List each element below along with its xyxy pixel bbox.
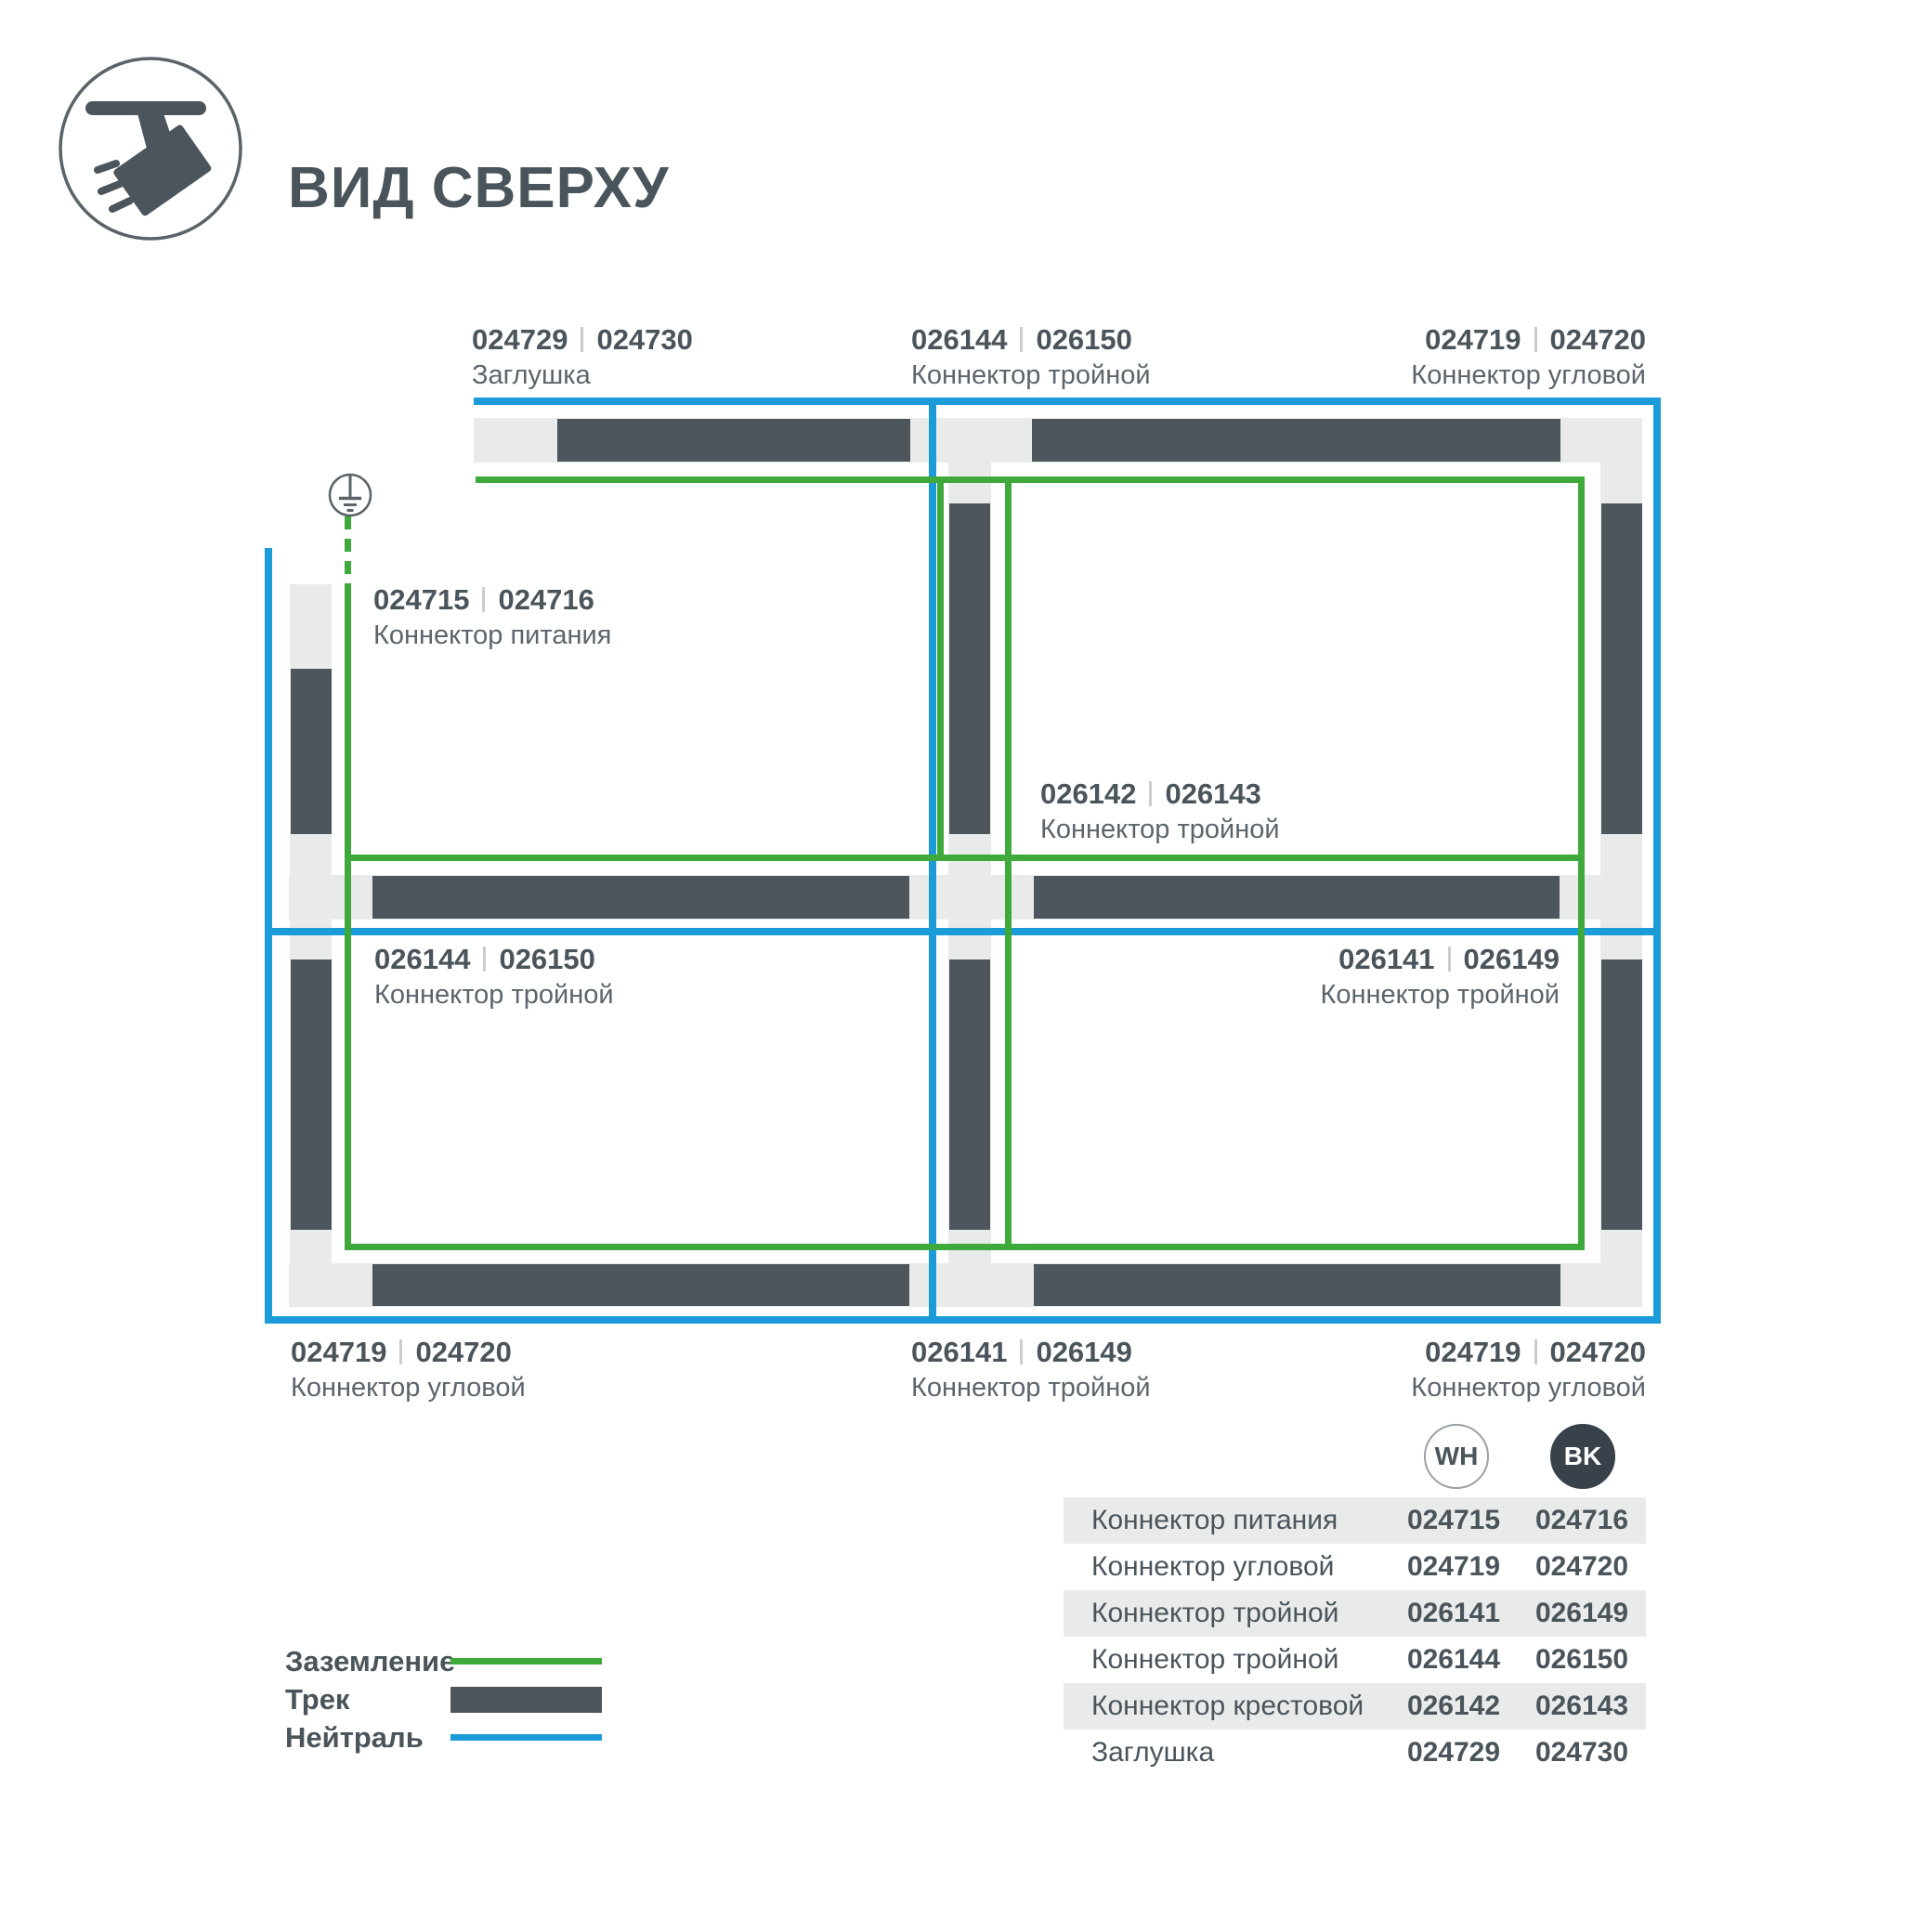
callout-triple-bottom: 026141026149 Коннектор тройной bbox=[911, 1338, 1151, 1402]
legend: Заземление Трек Нейтраль bbox=[285, 1642, 602, 1756]
ground-line-right bbox=[1578, 476, 1585, 1250]
track-segment bbox=[1034, 876, 1560, 919]
track-segment bbox=[372, 876, 909, 919]
legend-track-bar-swatch bbox=[450, 1687, 602, 1713]
ground-line-top bbox=[476, 476, 1585, 483]
track-segment bbox=[949, 503, 990, 834]
table-row: Коннектор крестовой 026142 026143 bbox=[1064, 1683, 1646, 1730]
neutral-line-left bbox=[265, 548, 272, 1324]
table-row: Коннектор угловой 024719 024720 bbox=[1064, 1544, 1646, 1590]
table-row: Коннектор питания 024715 024716 bbox=[1064, 1497, 1646, 1544]
callout-triple-mid-right: 026141026149 Коннектор тройной bbox=[1320, 945, 1560, 1009]
ground-symbol-icon bbox=[318, 463, 383, 528]
legend-item-track: Трек bbox=[285, 1680, 602, 1718]
ground-line-bottom bbox=[345, 1244, 1585, 1250]
callout-power-connector: 024715024716 Коннектор питания bbox=[373, 585, 611, 649]
track-segment bbox=[291, 669, 332, 834]
legend-item-neutral: Нейтраль bbox=[285, 1718, 602, 1756]
neutral-line-bottom bbox=[265, 1316, 1661, 1324]
track-segment bbox=[949, 959, 990, 1230]
callout-corner-bottom-right: 024719024720 Коннектор угловой bbox=[1411, 1338, 1646, 1402]
callout-end-cap-top: 024729024730 Заглушка bbox=[472, 325, 693, 389]
callout-triple-top: 026144026150 Коннектор тройной bbox=[911, 325, 1151, 389]
neutral-line-top bbox=[474, 398, 1661, 405]
ground-line-middle bbox=[345, 855, 1585, 861]
neutral-line-middle bbox=[265, 928, 1661, 935]
ground-line-center-left bbox=[937, 476, 944, 861]
parts-table: WH BK Коннектор питания 024715 024716 Ко… bbox=[1064, 1497, 1646, 1776]
callout-corner-top-right: 024719024720 Коннектор угловой bbox=[1411, 325, 1646, 389]
track-segment bbox=[372, 1264, 909, 1306]
table-row: Коннектор тройной 026144 026150 bbox=[1064, 1637, 1646, 1683]
track-segment bbox=[557, 419, 910, 462]
table-row: Заглушка 024729 024730 bbox=[1064, 1730, 1646, 1776]
track-segment bbox=[1034, 1264, 1560, 1306]
legend-neutral-line-swatch bbox=[450, 1734, 602, 1741]
track-segment bbox=[1601, 503, 1642, 834]
track-segment bbox=[291, 959, 332, 1230]
track-segment bbox=[1601, 959, 1642, 1230]
ground-line-left bbox=[345, 584, 351, 1250]
legend-ground-line-swatch bbox=[450, 1658, 602, 1664]
table-row: Коннектор тройной 026141 026149 bbox=[1064, 1590, 1646, 1637]
bk-color-badge: BK bbox=[1550, 1424, 1615, 1489]
callout-triple-mid-left: 026144026150 Коннектор тройной bbox=[374, 945, 614, 1009]
legend-item-ground: Заземление bbox=[285, 1642, 602, 1680]
neutral-line-right bbox=[1653, 398, 1661, 1324]
callout-corner-bottom-left: 024719024720 Коннектор угловой bbox=[291, 1338, 526, 1402]
ground-line-center-right bbox=[1005, 476, 1012, 1250]
callout-cross-connector: 026142026143 Коннектор тройной bbox=[1040, 779, 1280, 843]
track-segment bbox=[1032, 419, 1560, 462]
wh-color-badge: WH bbox=[1424, 1424, 1489, 1489]
